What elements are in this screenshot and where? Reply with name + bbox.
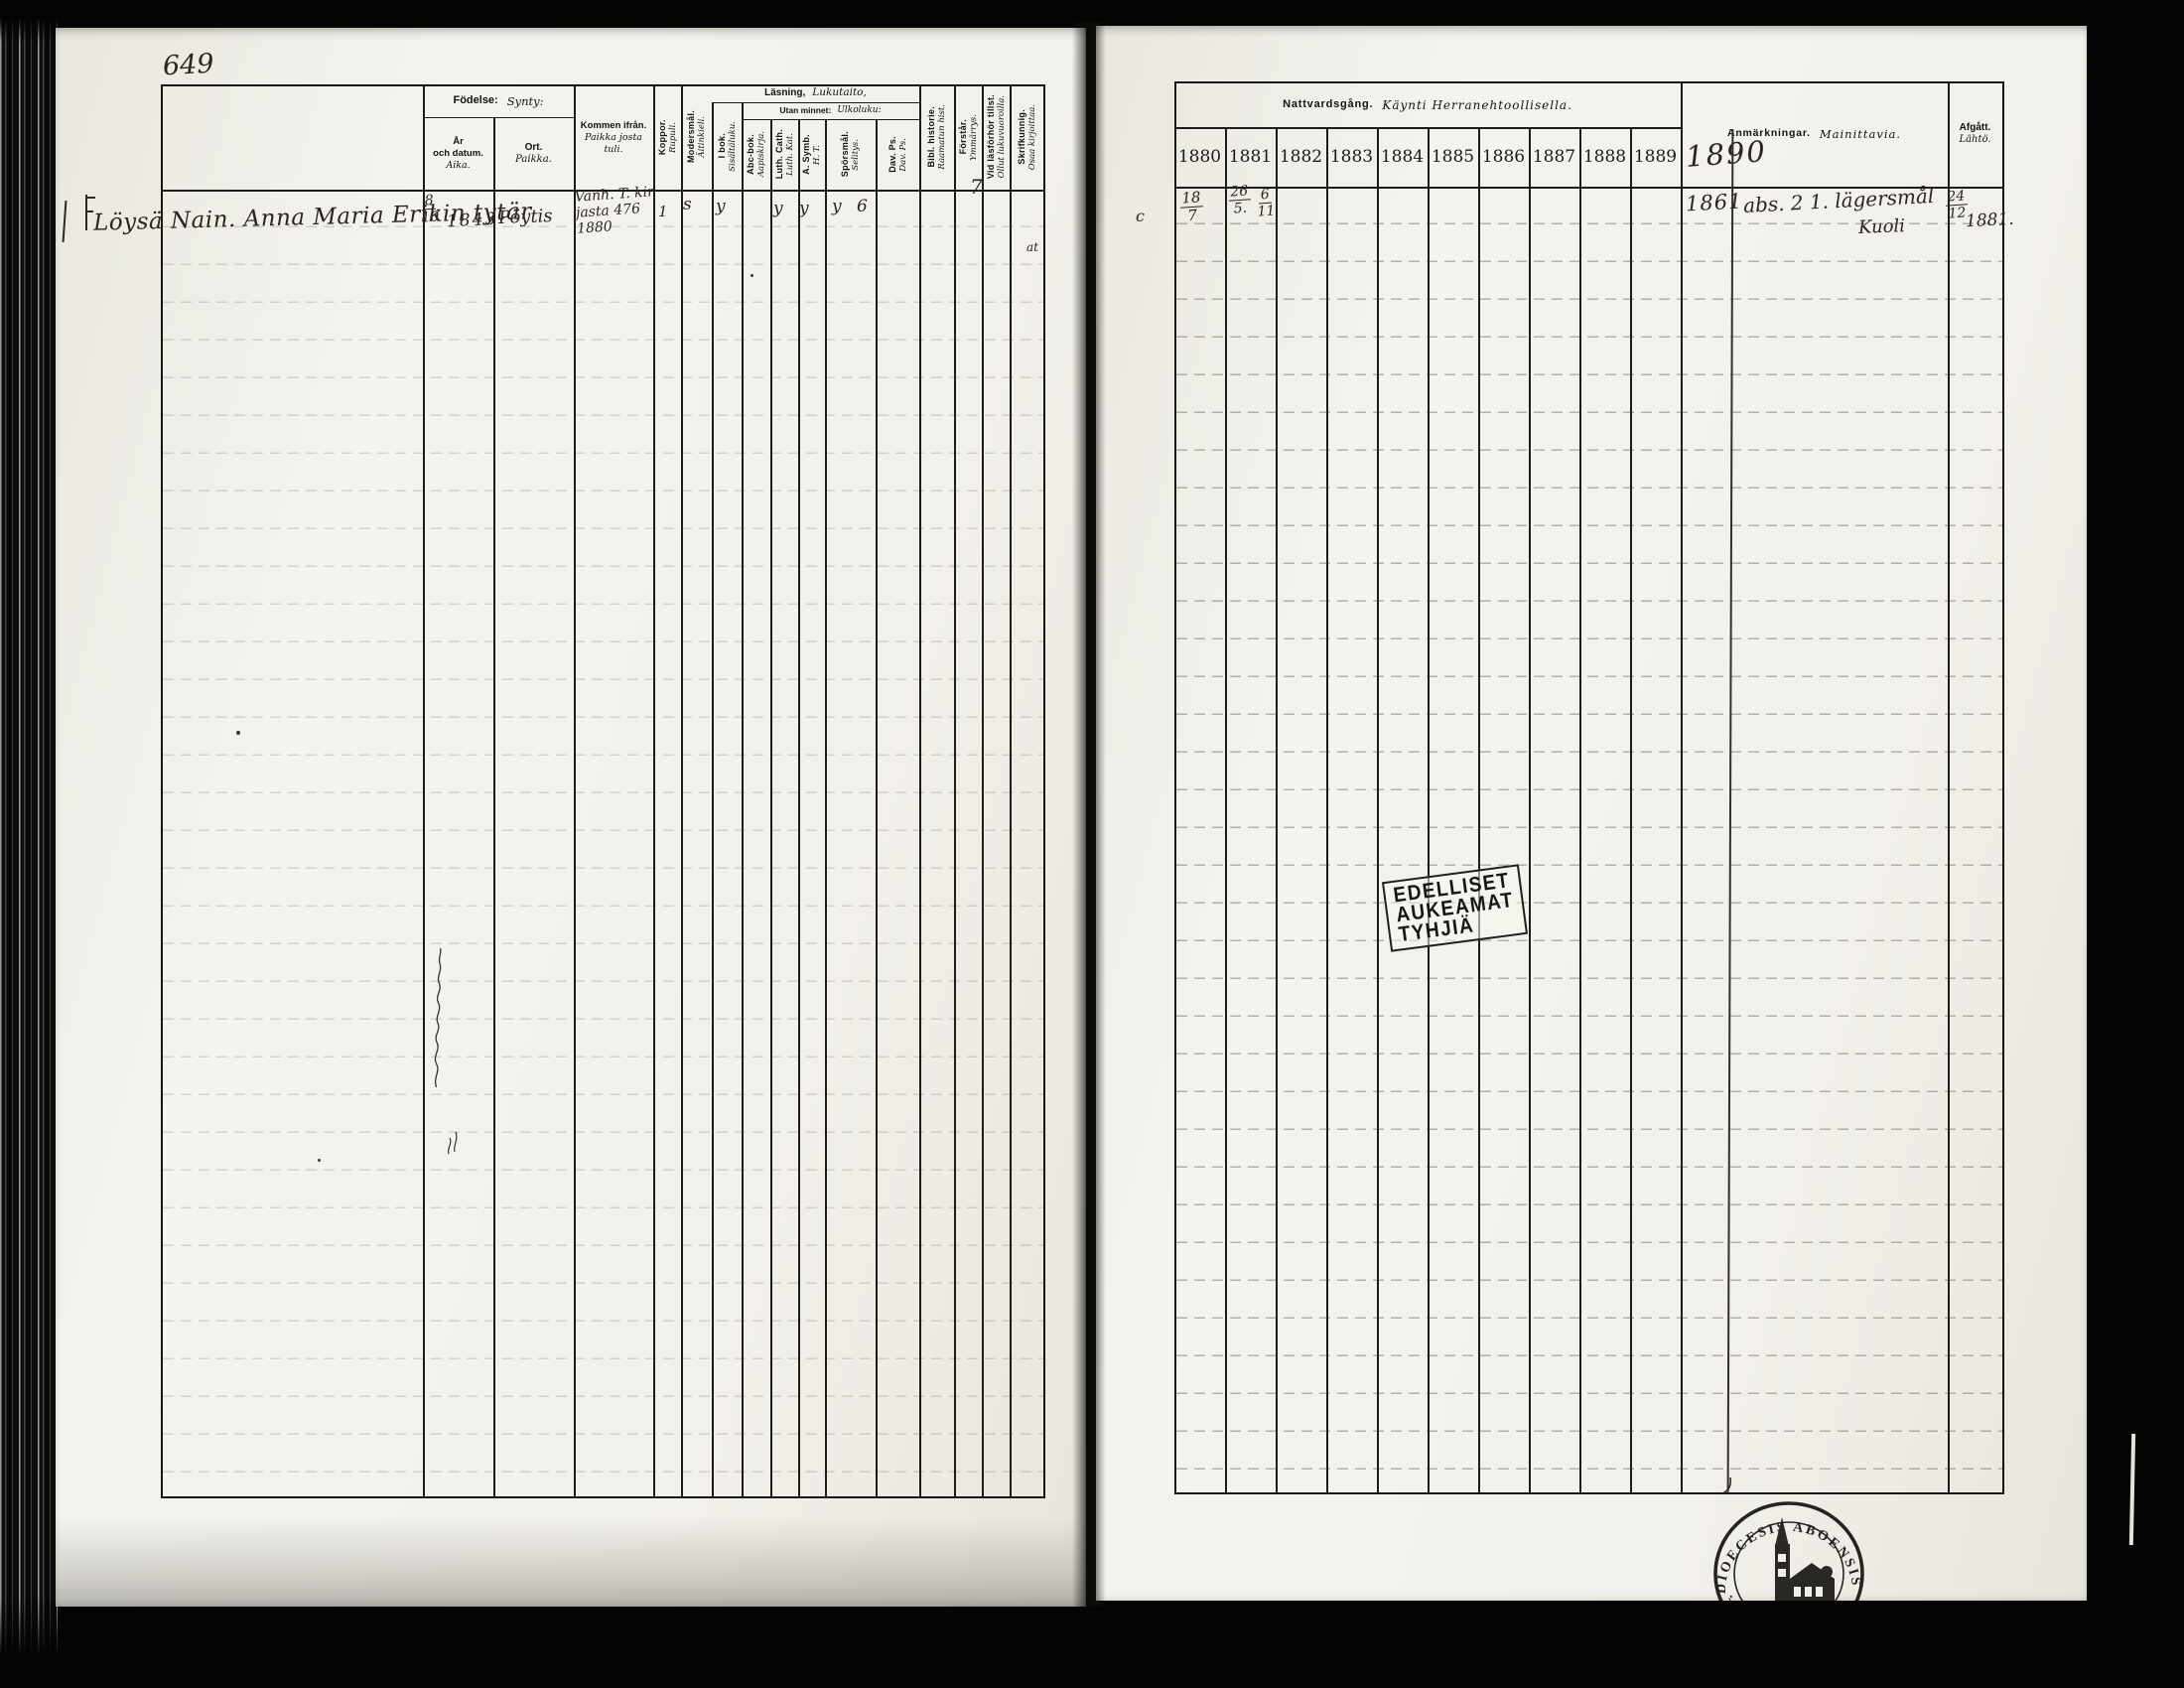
right-page: Nattvardsgång. Käynti Herranehtoollisell… [1096, 26, 2087, 1601]
psalms-sv: Dav. Ps. [887, 136, 897, 173]
communion-1880-date: 187 [1180, 189, 1203, 223]
ink-speck [751, 274, 753, 277]
table-right-border [2002, 81, 2004, 1494]
col-header-catechism: Luth. Cath.Luth. Kat. [770, 119, 798, 190]
departed-fi: Lähtö. [1959, 134, 1990, 147]
year-column-1884: 1884 [1377, 127, 1428, 187]
mark-catechism: y [773, 199, 783, 218]
col-header-symbolum: A. Symb.H. T. [798, 119, 825, 190]
year-label: 1886 [1482, 147, 1525, 167]
year-column-1882: 1882 [1276, 127, 1326, 187]
entry-birth-place: Pöytis [498, 206, 553, 228]
col-header-in-book: I bok.Sisältäluku. [712, 102, 742, 190]
comm-1881a-day: 26 [1228, 184, 1251, 201]
remarks-sv: Anmärkningar. [1727, 127, 1811, 140]
birth-month: 10 [421, 209, 440, 224]
symbolum-fi: H. T. [812, 145, 822, 165]
communion-sv: Nattvardsgång. [1283, 98, 1373, 112]
attended-exam-sv: Vid läsförhör tillst. [986, 94, 996, 179]
year-label: 1884 [1381, 147, 1424, 167]
ink-speck [318, 1159, 321, 1162]
entry-came-from: Vanh. T. kir jasta 476 1880 [574, 184, 656, 237]
departed-year: 1881. [1966, 210, 2015, 232]
place-header-fi: Paikka. [515, 154, 552, 167]
scan-edge-artifact [2129, 1434, 2135, 1545]
year-column-1886: 1886 [1478, 127, 1529, 187]
remarks-fi: Mainittavia. [1820, 127, 1901, 141]
col-header-mother-tongue: Modersmål.Äitinkieli. [681, 84, 712, 190]
birth-header-fi: Synty: [507, 94, 544, 108]
grid-line [423, 117, 574, 118]
birth-day: 8 [422, 194, 436, 211]
year-column-1881: 1881 [1225, 127, 1276, 187]
came-from-fi2: tuli. [604, 144, 622, 156]
year-column-1889: 1889 [1630, 127, 1681, 187]
understands-sv: Förstår. [958, 119, 968, 154]
catechism-fi: Luth. Kat. [785, 133, 795, 176]
mark-in-book: y [716, 197, 726, 216]
left-page: 649 Födelse: Synty: [56, 28, 1086, 1607]
mother-tongue-fi: Äitinkieli. [697, 116, 707, 158]
mark-questions: y 6 [832, 197, 873, 216]
by-heart-group-header: Utan minnet: Ulkoluku: [742, 102, 919, 119]
year-label: 1887 [1533, 147, 1575, 167]
birth-group-header: Födelse: Synty: [423, 87, 574, 115]
ruled-rows [163, 190, 1043, 1496]
came-from-sv: Kommen ifrån. [581, 120, 647, 132]
col-header-can-write: Skrifkunnig.Osaa kirjoittaa. [1010, 84, 1043, 190]
col-header-place: Ort. Paikka. [495, 119, 572, 189]
col-header-questions: Spörsmål.Selitys. [825, 119, 876, 190]
smallpox-fi: Rupuli. [668, 122, 678, 153]
ruled-rows [1176, 187, 2002, 1492]
psalms-fi: Dav. Ps. [898, 138, 908, 172]
can-write-sv: Skrifkunnig. [1017, 109, 1026, 165]
abc-book-fi: Aapiskirja. [756, 131, 766, 177]
mark-symbolum: y [799, 199, 809, 218]
attended-exam-fi: Ollut lukuvuoroilla. [997, 95, 1007, 178]
mark-smallpox: 1 [658, 203, 668, 220]
communion-group-header: Nattvardsgång. Käynti Herranehtoollisell… [1174, 89, 1681, 121]
year-label: 1888 [1583, 147, 1626, 167]
remarks-header: Anmärkningar. Mainittavia. [1681, 81, 1948, 187]
diocese-seal: DIOECESIS ABOENSIS. NL. MA [1709, 1499, 1868, 1601]
mark-understands: 7 [970, 175, 983, 199]
mark-mother-tongue: s [683, 195, 692, 214]
handwritten-line-hook [1719, 1477, 1735, 1495]
departed-day: 24 [1945, 189, 1968, 206]
book-scan: 649 Födelse: Synty: [0, 0, 2184, 1688]
entry-birth-year: 1843 [447, 210, 498, 232]
col-header-came-from: Kommen ifrån. Paikka josta tuli. [576, 89, 651, 187]
departed-date: 2412 [1946, 189, 1968, 220]
ink-speck [236, 731, 240, 735]
year-label: 1885 [1432, 147, 1474, 167]
questions-sv: Spörsmål. [840, 131, 850, 177]
remark-year: 1861 [1685, 190, 1743, 216]
scan-smudge [56, 1517, 1086, 1607]
year-label: 1883 [1330, 147, 1373, 167]
date-header-line2: och datum. [433, 148, 483, 160]
year-label: 1882 [1280, 147, 1322, 167]
year-column-1880: 1880 [1174, 127, 1225, 187]
comm-1880-month: 7 [1187, 208, 1198, 224]
col-header-abc-book: Abc-bok.Aapiskirja. [742, 119, 770, 190]
reading-header-fi: Lukutaito, [812, 86, 867, 99]
col-header-date: År och datum. Aika. [425, 119, 491, 189]
col-header-smallpox: Koppor.Rupuli. [653, 84, 681, 190]
comm-1881b-day: 6 [1258, 188, 1272, 205]
mark-can-write: at [1026, 240, 1038, 254]
communion-fi: Käynti Herranehtoollisella. [1382, 98, 1572, 113]
bible-history-sv: Bibl. historie. [926, 106, 936, 168]
in-book-sv: I bok. [717, 133, 727, 158]
entry-birth-date: 810 [421, 193, 439, 224]
year-label: 1881 [1229, 147, 1272, 167]
date-header-fi: Aika. [446, 160, 470, 172]
year-column-1887: 1887 [1529, 127, 1579, 187]
table-bottom-border [161, 1496, 1045, 1498]
departed-header: Afgått. Lähtö. [1948, 81, 2002, 187]
mother-tongue-sv: Modersmål. [686, 110, 696, 163]
reading-group-header: Läsning, Lukutaito, [712, 84, 919, 102]
by-heart-sv: Utan minnet: [779, 105, 831, 116]
bible-history-fi: Raamatun hist. [937, 104, 947, 170]
remark-text2: Kuoli [1858, 215, 1906, 238]
smallpox-sv: Koppor. [657, 119, 667, 155]
year-label: 1880 [1178, 147, 1221, 167]
page-number: 649 [162, 49, 214, 82]
col-header-attended-exam: Vid läsförhör tillst.Ollut lukuvuoroilla… [982, 84, 1010, 190]
reading-header-sv: Läsning, [764, 87, 805, 100]
in-book-fi: Sisältäluku. [728, 121, 738, 172]
place-header-sv: Ort. [525, 142, 543, 155]
departed-sv: Afgått. [1960, 122, 1991, 135]
communion-1881-dates: 265. 611 [1229, 185, 1275, 218]
table-right-border [1043, 84, 1045, 1498]
can-write-fi: Osaa kirjoittaa. [1027, 104, 1037, 170]
col-header-bible-history: Bibl. historie.Raamatun hist. [919, 84, 954, 190]
col-header-psalms: Dav. Ps.Dav. Ps. [876, 119, 919, 190]
year-column-1885: 1885 [1428, 127, 1478, 187]
understands-fi: Ymmärrys. [969, 114, 979, 161]
marginal-scribble-small [445, 1126, 461, 1156]
entry-margin-note: c [1136, 207, 1145, 225]
abc-book-sv: Abc-bok. [746, 134, 755, 175]
departed-month: 12 [1948, 205, 1967, 220]
comm-1881a-month: 5. [1233, 201, 1247, 216]
by-heart-fi: Ulkoluku: [837, 105, 881, 116]
comm-1881b-month: 11 [1257, 203, 1276, 218]
table-bottom-border [1174, 1492, 2004, 1494]
symbolum-sv: A. Symb. [801, 134, 811, 175]
came-from-fi1: Paikka josta [585, 132, 642, 144]
year-column-1888: 1888 [1579, 127, 1630, 187]
year-label: 1889 [1634, 147, 1677, 167]
page-gutter-shadow [1072, 22, 1106, 1607]
book-spine-page-edges [0, 18, 58, 1658]
catechism-sv: Luth. Cath. [774, 129, 784, 179]
questions-fi: Selitys. [851, 139, 861, 171]
year-column-1883: 1883 [1326, 127, 1377, 187]
date-header-line1: År [453, 136, 464, 148]
birth-header-sv: Födelse: [453, 94, 497, 108]
